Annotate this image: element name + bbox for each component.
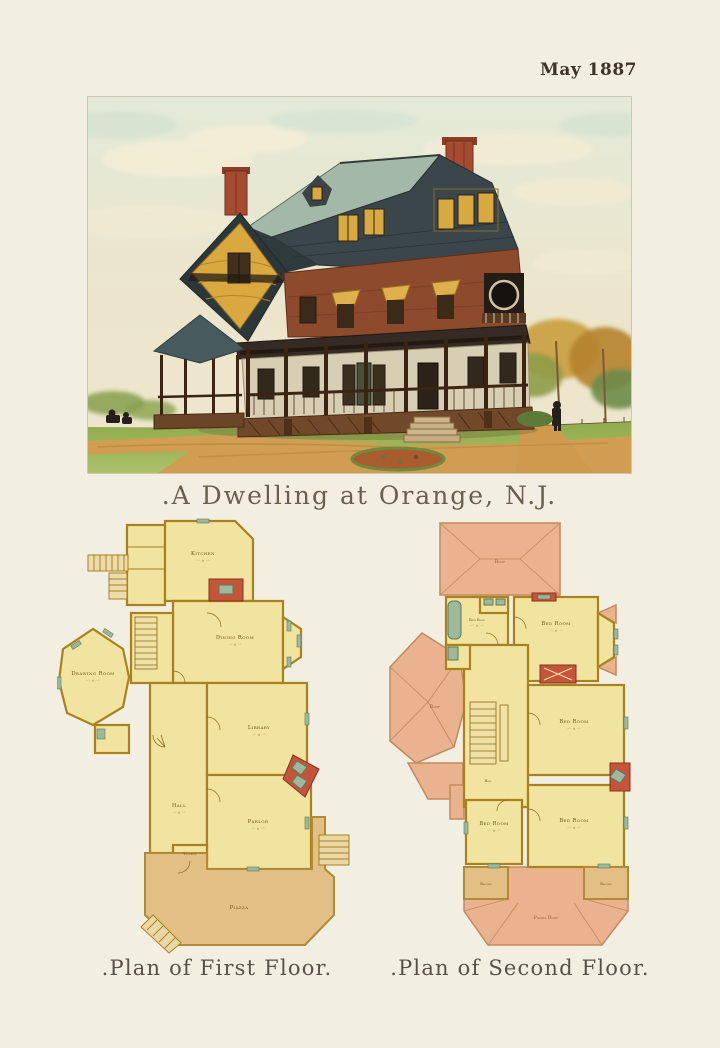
room-label-bed1: Bed Room (541, 621, 570, 627)
room-label-roof-top: Roof (495, 559, 505, 565)
room-label-hall2: Hall (484, 779, 492, 783)
second-floor-caption: .Plan of Second Floor. (375, 956, 665, 980)
room-dims-library: ··'· × ··'· (252, 733, 265, 737)
room-dims-bath: ··'· × ··'· (470, 624, 483, 628)
room-label-piazza: Piazza (230, 905, 249, 911)
house-illustration (88, 97, 631, 473)
room-label-balcony-left: Balcony (480, 882, 492, 886)
room-label-dining: Dining Room (216, 635, 254, 641)
room-label-vestibule: Vestibule (182, 852, 197, 856)
bush (517, 411, 553, 427)
room-label-piazza-roof: Piazza Roof (534, 915, 559, 921)
main-caption: .A Dwelling at Orange, N.J. (88, 481, 631, 510)
print-page: May 1887 (0, 0, 720, 1048)
second-floor-plan: Roof Bath Room ··'· × ··'· Bed Room ··'·… (388, 517, 698, 957)
first-floor-caption: .Plan of First Floor. (67, 956, 367, 980)
house-painting (88, 97, 631, 473)
first-floor-plan: Kitchen ··'· × ··'· Dining Room ··'· × ·… (57, 517, 357, 957)
room-label-bed3: Bed Room (479, 821, 508, 827)
room-dims-bed1: ··'· × ··'· (549, 629, 562, 633)
room-label-kitchen: Kitchen (191, 551, 215, 557)
kitchen-range (209, 579, 243, 601)
date-label: May 1887 (0, 60, 637, 80)
room-dims-bed2: ··'· × ··'· (567, 727, 580, 731)
room-dims-kitchen: ··'· × ··'· (196, 559, 209, 563)
room-dims-dining: ··'· × ··'· (228, 643, 241, 647)
room-dims-drawing: ··'· × ··'· (86, 679, 99, 683)
room-label-hall: Hall (172, 803, 186, 809)
flowerbed (352, 448, 444, 470)
room-label-balcony-right: Balcony (600, 882, 612, 886)
room-label-library: Library (248, 725, 270, 731)
room-label-bed2: Bed Room (559, 719, 588, 725)
room-label-bath: Bath Room (469, 618, 485, 622)
room-label-drawing: Drawing Room (71, 671, 114, 677)
room-dims-parlor: ··'· × ··'· (251, 827, 264, 831)
second-floor-plan-drawing: Roof Bath Room ··'· × ··'· Bed Room ··'·… (388, 517, 698, 957)
room-label-parlor: Parlor (248, 819, 269, 825)
room-label-bed4: Bed Room (559, 818, 588, 824)
first-floor-plan-drawing: Kitchen ··'· × ··'· Dining Room ··'· × ·… (57, 517, 357, 957)
room-dims-hall: ··'· × ··'· (172, 811, 185, 815)
room-dims-bed4: ··'· × ··'· (567, 826, 580, 830)
room-label-roof-octagon: Roof (430, 704, 440, 710)
room-dims-bed3: ··'· × ··'· (487, 829, 500, 833)
